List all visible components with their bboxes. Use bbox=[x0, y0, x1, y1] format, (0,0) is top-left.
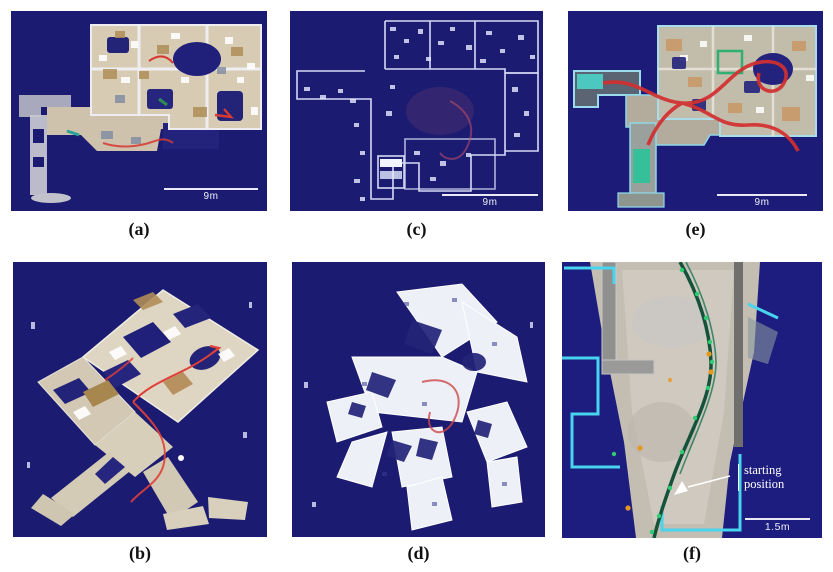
map-stairs bbox=[380, 159, 402, 167]
panel-label-b: (b) bbox=[13, 543, 267, 564]
scale-bar-line bbox=[717, 194, 807, 196]
scale-bar-label: 9m bbox=[442, 197, 538, 208]
starting-position-annotation: starting position bbox=[738, 464, 784, 491]
panel-a-map: 9m bbox=[11, 11, 267, 211]
panel-label-f: (f) bbox=[562, 543, 822, 564]
scale-bar-label: 9m bbox=[164, 191, 258, 202]
point-cloud-map-top-down-sparse bbox=[290, 11, 543, 211]
panel-e-map: 9m bbox=[568, 11, 823, 211]
point-cloud-map-closeup bbox=[562, 262, 822, 538]
panel-label-a: (a) bbox=[11, 219, 267, 240]
point-cloud-map-top-down-textured bbox=[11, 11, 267, 211]
point-cloud-map-oblique-sparse bbox=[292, 262, 545, 537]
scale-bar-label: 9m bbox=[717, 197, 807, 208]
scale-bar-line bbox=[164, 188, 258, 190]
annotation-line-2: position bbox=[744, 478, 784, 492]
panel-d-map bbox=[292, 262, 545, 537]
scale-bar-line bbox=[745, 518, 810, 520]
figure-panel-grid: 9m (a) bbox=[0, 0, 833, 572]
annotation-line-1: starting bbox=[744, 464, 784, 478]
scale-bar-label: 1.5m bbox=[745, 521, 810, 533]
scale-bar: 9m bbox=[442, 194, 538, 208]
point-cloud-map-oblique-textured bbox=[13, 262, 267, 537]
scale-bar: 9m bbox=[717, 194, 807, 208]
scale-bar-line bbox=[442, 194, 538, 196]
panel-label-c: (c) bbox=[290, 219, 543, 240]
scale-bar: 9m bbox=[164, 188, 258, 202]
point-cloud-map-top-down-trajectory bbox=[568, 11, 823, 211]
map-rooms bbox=[658, 26, 816, 136]
panel-b-map bbox=[13, 262, 267, 537]
scale-bar: 1.5m bbox=[745, 518, 810, 533]
panel-label-e: (e) bbox=[568, 219, 823, 240]
panel-c-map: 9m bbox=[290, 11, 543, 211]
panel-label-d: (d) bbox=[292, 543, 545, 564]
map-white-dot bbox=[178, 455, 184, 461]
panel-f-map: starting position 1.5m bbox=[562, 262, 822, 538]
